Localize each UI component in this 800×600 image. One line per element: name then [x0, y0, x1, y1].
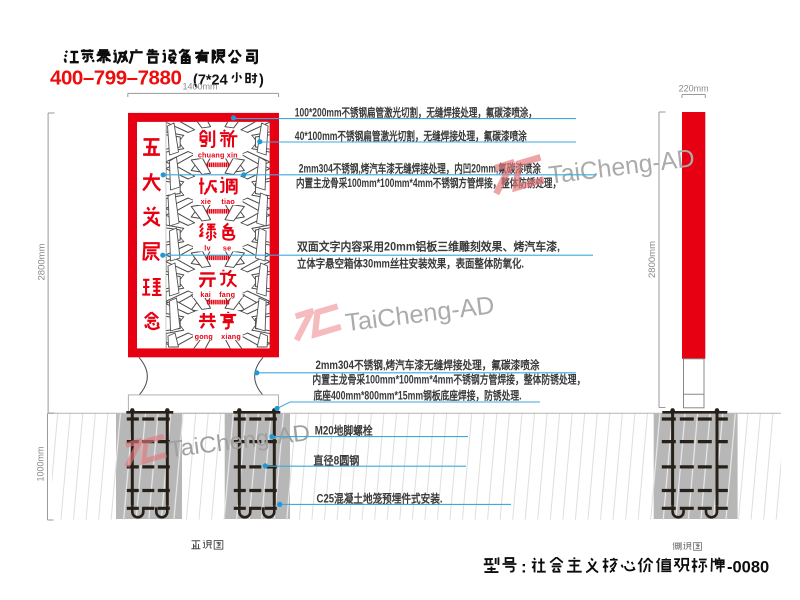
svg-text:2800mm: 2800mm: [647, 241, 658, 278]
svg-text:xie tiao: xie tiao: [201, 197, 236, 206]
svg-text:100*200mm不锈钢扁管激光切割，无缝焊接处理，氟碳漆喷: 100*200mm不锈钢扁管激光切割，无缝焊接处理，氟碳漆喷涂，: [295, 105, 537, 119]
svg-text:2800mm: 2800mm: [37, 243, 48, 280]
svg-text::: :: [521, 558, 527, 577]
svg-text:lv se: lv se: [204, 244, 231, 253]
svg-text:C25混凝土地笼预埋件式安装.: C25混凝土地笼预埋件式安装.: [317, 492, 443, 506]
svg-text:400–799–7880: 400–799–7880: [50, 66, 181, 89]
svg-text:220mm: 220mm: [679, 84, 709, 94]
svg-text:立体字悬空箱体30mm丝柱安装效果，表面整体防氧化.: 立体字悬空箱体30mm丝柱安装效果，表面整体防氧化.: [297, 256, 524, 270]
svg-text:双面文字内容采用20mm铝板三维雕刻效果、烤汽车漆,: 双面文字内容采用20mm铝板三维雕刻效果、烤汽车漆,: [296, 240, 560, 254]
svg-text:M20地脚螺栓: M20地脚螺栓: [315, 423, 373, 437]
svg-text:40*100mm不锈钢扁管激光切割，无缝焊接处理，氟碳漆喷涂: 40*100mm不锈钢扁管激光切割，无缝焊接处理，氟碳漆喷涂: [295, 129, 527, 143]
svg-text:chuang xin: chuang xin: [198, 151, 238, 160]
svg-text:底座400mm*800mm*15mm钢板底座焊接，防锈处理.: 底座400mm*800mm*15mm钢板底座焊接，防锈处理.: [314, 389, 522, 403]
svg-text:kai fang: kai fang: [200, 290, 235, 299]
svg-text:gong xiang: gong xiang: [195, 332, 241, 341]
svg-text:直径8圆钢: 直径8圆钢: [313, 453, 359, 467]
svg-text:-0080: -0080: [727, 559, 769, 577]
svg-text:内置主龙骨采100mm*100mm*4mm不锈钢方管焊接，整: 内置主龙骨采100mm*100mm*4mm不锈钢方管焊接，整体防锈处理，: [312, 373, 585, 387]
svg-text:1000mm: 1000mm: [36, 446, 46, 481]
svg-text:1400mm: 1400mm: [182, 82, 217, 92]
svg-text:): ): [259, 73, 264, 89]
svg-text:2mm304不锈钢,烤汽车漆无缝焊接处理，氟碳漆喷涂: 2mm304不锈钢,烤汽车漆无缝焊接处理，氟碳漆喷涂: [316, 358, 540, 372]
